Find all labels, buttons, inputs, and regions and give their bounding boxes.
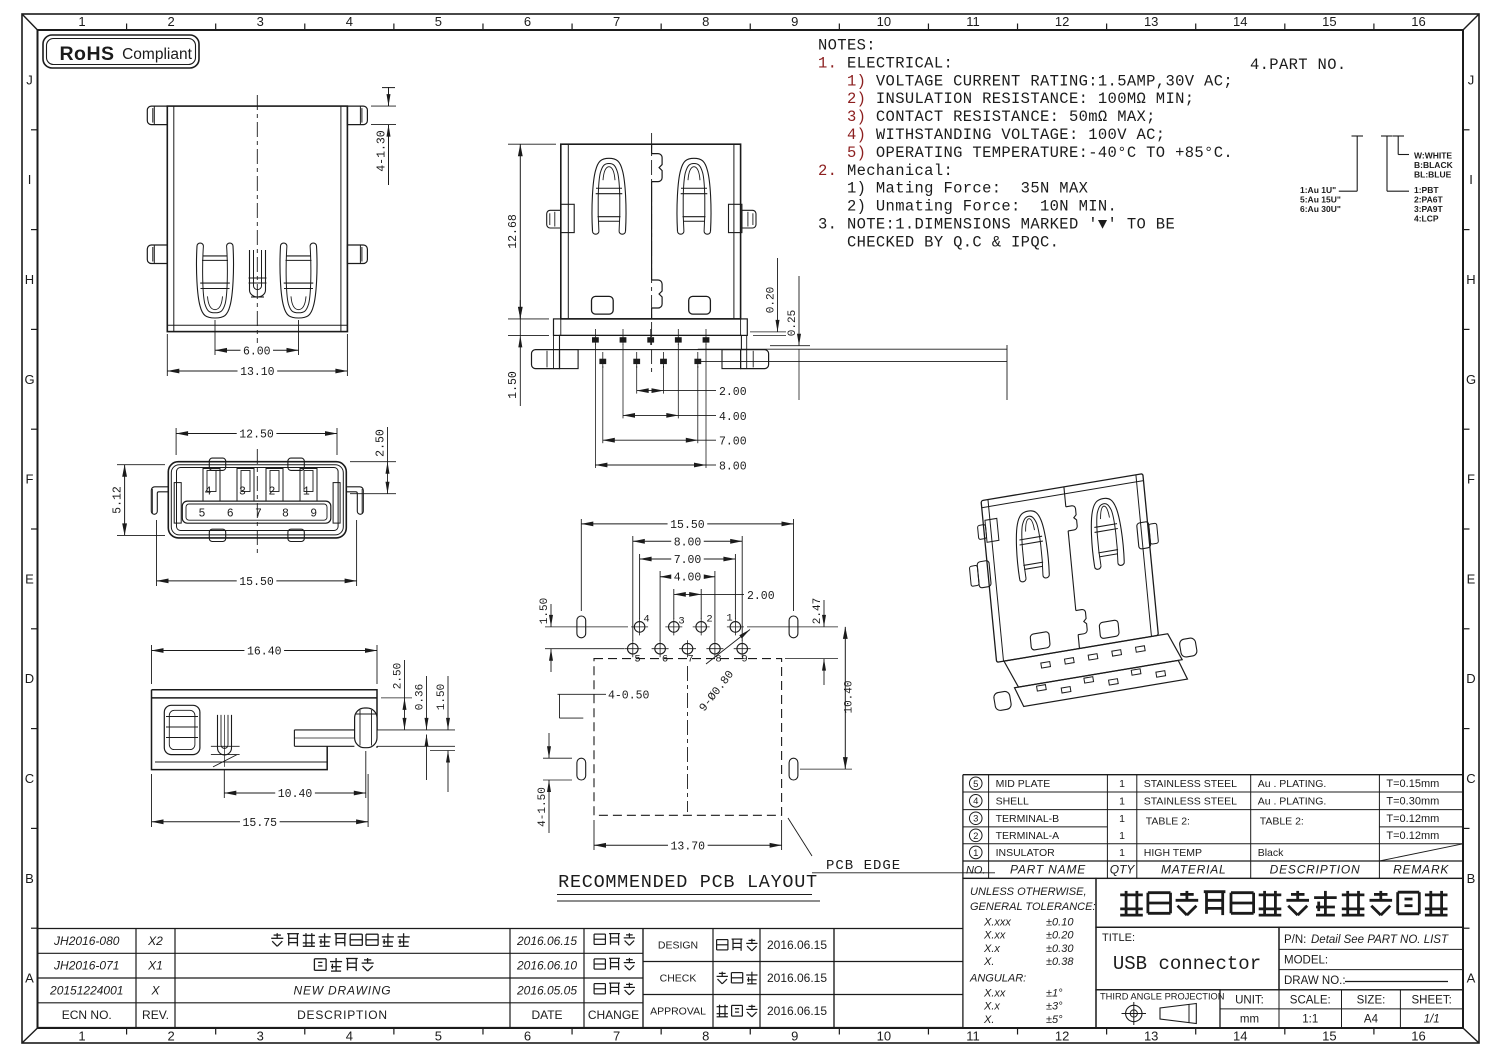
svg-text:STAINLESS STEEL: STAINLESS STEEL bbox=[1144, 796, 1237, 808]
svg-text:11: 11 bbox=[966, 14, 980, 29]
svg-text:3: 3 bbox=[973, 814, 978, 825]
svg-text:6:Au 30U": 6:Au 30U" bbox=[1300, 204, 1341, 214]
svg-text:F: F bbox=[26, 472, 34, 487]
svg-text:X.xx: X.xx bbox=[983, 930, 1006, 942]
svg-text:16.40: 16.40 bbox=[247, 646, 282, 659]
svg-text:13: 13 bbox=[1144, 14, 1158, 29]
svg-text:2.00: 2.00 bbox=[747, 590, 775, 603]
svg-text:4-1.30: 4-1.30 bbox=[376, 130, 389, 172]
svg-text:2:PA6T: 2:PA6T bbox=[1414, 195, 1443, 205]
svg-text:THIRD ANGLE PROJECTION: THIRD ANGLE PROJECTION bbox=[1100, 992, 1225, 1002]
svg-text:HIGH TEMP: HIGH TEMP bbox=[1144, 847, 1202, 859]
svg-text:VOLTAGE CURRENT RATING:1.5AMP,: VOLTAGE CURRENT RATING:1.5AMP,30V AC; bbox=[818, 72, 1233, 90]
svg-text:2016.06.10: 2016.06.10 bbox=[516, 959, 577, 973]
svg-text:1: 1 bbox=[973, 848, 978, 859]
svg-text:T=0.12mm: T=0.12mm bbox=[1386, 830, 1439, 842]
svg-text:1: 1 bbox=[1119, 813, 1125, 825]
svg-text:USB connector: USB connector bbox=[1113, 953, 1261, 975]
svg-text:PCB EDGE: PCB EDGE bbox=[826, 858, 901, 874]
svg-text:JH2016-080: JH2016-080 bbox=[53, 934, 120, 948]
svg-text:H: H bbox=[1466, 272, 1475, 287]
svg-text:2.47: 2.47 bbox=[812, 598, 824, 624]
svg-text:1:1: 1:1 bbox=[1302, 1013, 1318, 1025]
svg-text:15.50: 15.50 bbox=[670, 519, 705, 532]
svg-text:2.50: 2.50 bbox=[393, 663, 405, 689]
svg-text:DRAW NO.:: DRAW NO.: bbox=[1284, 975, 1346, 987]
svg-text:15.50: 15.50 bbox=[239, 576, 274, 589]
svg-text:2) Unmating Force: 10N MIN.: 2) Unmating Force: 10N MIN. bbox=[818, 198, 1117, 216]
svg-text:12: 12 bbox=[1055, 1029, 1069, 1044]
svg-text:7.00: 7.00 bbox=[719, 436, 747, 449]
svg-text:1: 1 bbox=[726, 613, 732, 625]
svg-text:9: 9 bbox=[791, 14, 798, 29]
svg-text:I: I bbox=[28, 172, 32, 187]
svg-text:1: 1 bbox=[1119, 778, 1125, 790]
svg-text:TABLE 2:: TABLE 2: bbox=[1260, 815, 1304, 827]
svg-text:B: B bbox=[1467, 871, 1476, 886]
svg-text:SHELL: SHELL bbox=[996, 796, 1029, 808]
svg-text:5: 5 bbox=[435, 14, 442, 29]
svg-text:2016.06.15: 2016.06.15 bbox=[516, 934, 577, 948]
svg-text:4: 4 bbox=[973, 796, 978, 807]
svg-text:Black: Black bbox=[1258, 847, 1284, 859]
svg-text:RoHS: RoHS bbox=[59, 43, 114, 65]
svg-text:TERMINAL-B: TERMINAL-B bbox=[996, 813, 1060, 825]
svg-text:CHECK: CHECK bbox=[660, 973, 697, 985]
svg-text:X.xx: X.xx bbox=[983, 988, 1006, 1000]
svg-text:8: 8 bbox=[702, 14, 709, 29]
svg-text:14: 14 bbox=[1233, 14, 1247, 29]
svg-text:5: 5 bbox=[198, 508, 205, 521]
svg-text:1) Mating Force: 35N MAX: 1) Mating Force: 35N MAX bbox=[818, 180, 1089, 198]
svg-text:TITLE:: TITLE: bbox=[1102, 932, 1135, 944]
svg-text:T=0.12mm: T=0.12mm bbox=[1386, 813, 1439, 825]
svg-text:9: 9 bbox=[310, 508, 317, 521]
svg-text:X: X bbox=[150, 983, 160, 997]
svg-text:B:BLACK: B:BLACK bbox=[1414, 160, 1454, 170]
svg-text:5: 5 bbox=[973, 779, 978, 790]
svg-text:5.12: 5.12 bbox=[112, 486, 125, 514]
svg-text:WITHSTANDING VOLTAGE: 100V AC;: WITHSTANDING VOLTAGE: 100V AC; bbox=[818, 126, 1165, 144]
svg-text:I: I bbox=[1469, 172, 1473, 187]
svg-text:9: 9 bbox=[741, 654, 747, 666]
svg-text:6: 6 bbox=[524, 1029, 531, 1044]
svg-text:2016.06.15: 2016.06.15 bbox=[767, 971, 827, 985]
svg-text:DESCRIPTION: DESCRIPTION bbox=[1270, 863, 1361, 877]
svg-text:X.xxx: X.xxx bbox=[983, 917, 1011, 929]
svg-text:10: 10 bbox=[877, 14, 891, 29]
svg-text:CONTACT RESISTANCE: 50mΩ MAX;: CONTACT RESISTANCE: 50mΩ MAX; bbox=[818, 108, 1156, 126]
svg-text:6: 6 bbox=[662, 654, 668, 666]
svg-text:2: 2 bbox=[973, 831, 978, 842]
svg-text:NO.: NO. bbox=[966, 865, 986, 877]
svg-text:APPROVAL: APPROVAL bbox=[650, 1006, 706, 1018]
svg-text:±0.30: ±0.30 bbox=[1046, 943, 1074, 955]
svg-text:G: G bbox=[1466, 372, 1476, 387]
svg-text:7: 7 bbox=[613, 1029, 620, 1044]
svg-text:UNLESS OTHERWISE,: UNLESS OTHERWISE, bbox=[970, 886, 1087, 898]
svg-text:ANGULAR:: ANGULAR: bbox=[969, 973, 1026, 985]
svg-text:X.: X. bbox=[983, 956, 994, 968]
svg-text:4: 4 bbox=[346, 1029, 353, 1044]
svg-text:10.40: 10.40 bbox=[278, 788, 313, 801]
svg-text:6: 6 bbox=[524, 14, 531, 29]
svg-text:5: 5 bbox=[634, 654, 640, 666]
svg-text:7: 7 bbox=[255, 508, 262, 521]
svg-text:3: 3 bbox=[257, 14, 264, 29]
svg-text:12.50: 12.50 bbox=[239, 429, 274, 442]
svg-text:±1°: ±1° bbox=[1046, 988, 1063, 1000]
svg-text:2: 2 bbox=[168, 14, 175, 29]
svg-text:0.20: 0.20 bbox=[766, 287, 778, 313]
svg-text:DESCRIPTION: DESCRIPTION bbox=[297, 1008, 388, 1022]
svg-text:8: 8 bbox=[282, 508, 289, 521]
svg-text:4.PART NO.: 4.PART NO. bbox=[1250, 56, 1347, 74]
svg-text:UNIT:: UNIT: bbox=[1235, 994, 1264, 1006]
svg-text:G: G bbox=[24, 372, 34, 387]
svg-text:14: 14 bbox=[1233, 1029, 1247, 1044]
svg-text:MATERIAL: MATERIAL bbox=[1161, 863, 1227, 877]
svg-text:3. NOTE:1.DIMENSIONS MARKED '▼: 3. NOTE:1.DIMENSIONS MARKED '▼' TO BE bbox=[818, 216, 1175, 234]
svg-text:12.68: 12.68 bbox=[507, 214, 520, 249]
svg-text:X.x: X.x bbox=[983, 1001, 1000, 1013]
svg-text:15: 15 bbox=[1322, 1029, 1336, 1044]
svg-text:13.70: 13.70 bbox=[671, 840, 706, 853]
svg-text:A: A bbox=[25, 971, 34, 986]
svg-text:5: 5 bbox=[435, 1029, 442, 1044]
svg-text:3:PA9T: 3:PA9T bbox=[1414, 204, 1443, 214]
svg-text:E: E bbox=[1467, 571, 1476, 586]
svg-text:SCALE:: SCALE: bbox=[1290, 994, 1331, 1006]
svg-text:1:Au 1U": 1:Au 1U" bbox=[1300, 185, 1336, 195]
svg-text:4-1.50: 4-1.50 bbox=[537, 787, 549, 827]
svg-text:D: D bbox=[25, 671, 34, 686]
svg-text:5:Au 15U": 5:Au 15U" bbox=[1300, 195, 1341, 205]
svg-text:4:LCP: 4:LCP bbox=[1414, 214, 1439, 224]
svg-text:8: 8 bbox=[715, 654, 721, 666]
svg-text:J: J bbox=[26, 72, 33, 87]
svg-text:1: 1 bbox=[1119, 847, 1125, 859]
svg-text:TERMINAL-A: TERMINAL-A bbox=[996, 830, 1060, 842]
svg-text:1: 1 bbox=[1119, 830, 1125, 842]
svg-text:7: 7 bbox=[613, 14, 620, 29]
svg-text:8.00: 8.00 bbox=[674, 536, 702, 549]
svg-text:W:WHITE: W:WHITE bbox=[1414, 151, 1452, 161]
svg-text:X2: X2 bbox=[147, 934, 163, 948]
svg-text:±0.10: ±0.10 bbox=[1046, 917, 1074, 929]
svg-text:2: 2 bbox=[706, 614, 712, 626]
svg-text:DESIGN: DESIGN bbox=[658, 940, 698, 952]
svg-text:1.50: 1.50 bbox=[507, 371, 520, 399]
svg-text:CHECKED BY Q.C & IPQC.: CHECKED BY Q.C & IPQC. bbox=[818, 233, 1059, 251]
svg-text:10.40: 10.40 bbox=[844, 680, 856, 713]
svg-text:JH2016-071: JH2016-071 bbox=[53, 959, 119, 973]
svg-text:1.50: 1.50 bbox=[539, 598, 551, 624]
svg-text:4-0.50: 4-0.50 bbox=[608, 690, 650, 703]
svg-text:SHEET:: SHEET: bbox=[1412, 994, 1452, 1006]
svg-text:12: 12 bbox=[1055, 14, 1069, 29]
svg-text:2.00: 2.00 bbox=[719, 386, 747, 399]
svg-text:STAINLESS STEEL: STAINLESS STEEL bbox=[1144, 778, 1237, 790]
svg-text:H: H bbox=[25, 272, 34, 287]
svg-text:2016.06.15: 2016.06.15 bbox=[767, 1004, 827, 1018]
svg-text:2016.05.05: 2016.05.05 bbox=[516, 983, 577, 997]
svg-text:6.00: 6.00 bbox=[243, 345, 271, 358]
svg-text:3: 3 bbox=[678, 616, 684, 628]
svg-text:SIZE:: SIZE: bbox=[1357, 994, 1386, 1006]
svg-text:9: 9 bbox=[791, 1029, 798, 1044]
svg-text:4: 4 bbox=[205, 486, 212, 499]
svg-text:NEW DRAWING: NEW DRAWING bbox=[294, 983, 392, 997]
svg-text:13: 13 bbox=[1144, 1029, 1158, 1044]
svg-text:15: 15 bbox=[1322, 14, 1336, 29]
svg-text:B: B bbox=[25, 871, 34, 886]
svg-text:±0.38: ±0.38 bbox=[1046, 956, 1074, 968]
svg-text:RECOMMENDED PCB LAYOUT: RECOMMENDED PCB LAYOUT bbox=[558, 872, 818, 893]
svg-text:DATE: DATE bbox=[531, 1008, 562, 1022]
svg-text:±3°: ±3° bbox=[1046, 1001, 1063, 1013]
svg-text:X1: X1 bbox=[147, 959, 163, 973]
svg-text:4.00: 4.00 bbox=[719, 411, 747, 424]
svg-text:Mechanical:: Mechanical: bbox=[818, 162, 953, 180]
svg-text:PART NAME: PART NAME bbox=[1010, 863, 1086, 877]
svg-text:mm: mm bbox=[1240, 1013, 1259, 1025]
svg-text:QTY: QTY bbox=[1110, 863, 1136, 877]
svg-text:0.36: 0.36 bbox=[415, 684, 427, 710]
svg-text:6: 6 bbox=[227, 508, 234, 521]
svg-text:D: D bbox=[1466, 671, 1475, 686]
svg-text:J: J bbox=[1468, 72, 1475, 87]
svg-text:T=0.30mm: T=0.30mm bbox=[1386, 796, 1439, 808]
svg-text:7: 7 bbox=[687, 654, 693, 666]
svg-text:REMARK: REMARK bbox=[1393, 863, 1449, 877]
svg-text:1: 1 bbox=[1119, 796, 1125, 808]
svg-text:X.: X. bbox=[983, 1014, 994, 1026]
svg-text:A: A bbox=[1467, 971, 1476, 986]
svg-text:Detail See PART NO. LIST: Detail See PART NO. LIST bbox=[1311, 934, 1449, 946]
svg-text:9-Ø0.80: 9-Ø0.80 bbox=[697, 668, 737, 714]
svg-text:20151224001: 20151224001 bbox=[49, 983, 123, 997]
svg-text:10: 10 bbox=[877, 1029, 891, 1044]
svg-text:Au . PLATING.: Au . PLATING. bbox=[1258, 778, 1327, 790]
svg-text:REV.: REV. bbox=[142, 1008, 169, 1022]
svg-text:4: 4 bbox=[346, 14, 353, 29]
svg-text:0.25: 0.25 bbox=[787, 310, 799, 336]
svg-text:T=0.15mm: T=0.15mm bbox=[1386, 778, 1439, 790]
svg-text:C: C bbox=[1466, 771, 1475, 786]
svg-text:8: 8 bbox=[702, 1029, 709, 1044]
svg-text:3: 3 bbox=[239, 486, 246, 499]
svg-text:4: 4 bbox=[643, 614, 649, 626]
svg-text:ELECTRICAL:: ELECTRICAL: bbox=[818, 54, 953, 72]
svg-text:A4: A4 bbox=[1364, 1013, 1379, 1025]
svg-text:3: 3 bbox=[257, 1029, 264, 1044]
svg-text:1:PBT: 1:PBT bbox=[1414, 185, 1439, 195]
svg-text:8.00: 8.00 bbox=[719, 461, 747, 474]
svg-text:2: 2 bbox=[168, 1029, 175, 1044]
svg-text:Compliant: Compliant bbox=[122, 46, 192, 63]
svg-text:ECN NO.: ECN NO. bbox=[62, 1008, 112, 1022]
svg-text:4.00: 4.00 bbox=[674, 572, 702, 585]
svg-text:2016.06.15: 2016.06.15 bbox=[767, 938, 827, 952]
svg-text:13.10: 13.10 bbox=[240, 366, 275, 379]
svg-text:15.75: 15.75 bbox=[243, 817, 278, 830]
svg-text:1: 1 bbox=[78, 14, 85, 29]
svg-text:±0.20: ±0.20 bbox=[1046, 930, 1074, 942]
svg-text:1: 1 bbox=[78, 1029, 85, 1044]
svg-text:BL:BLUE: BL:BLUE bbox=[1414, 170, 1452, 180]
svg-text:1/1: 1/1 bbox=[1424, 1013, 1440, 1025]
svg-text:1: 1 bbox=[303, 486, 310, 499]
svg-text:Au . PLATING.: Au . PLATING. bbox=[1258, 796, 1327, 808]
svg-text:MID PLATE: MID PLATE bbox=[996, 778, 1051, 790]
svg-text:NOTES:: NOTES: bbox=[818, 37, 876, 55]
svg-text:C: C bbox=[25, 771, 34, 786]
svg-text:2: 2 bbox=[268, 486, 275, 499]
svg-text:INSULATOR: INSULATOR bbox=[996, 847, 1056, 859]
svg-text:OPERATING TEMPERATURE:-40°C TO: OPERATING TEMPERATURE:-40°C TO +85°C. bbox=[818, 144, 1233, 162]
svg-text:TABLE 2:: TABLE 2: bbox=[1146, 815, 1190, 827]
svg-text:X.x: X.x bbox=[983, 943, 1000, 955]
svg-text:11: 11 bbox=[966, 1029, 980, 1044]
svg-text:E: E bbox=[25, 571, 34, 586]
svg-text:2.50: 2.50 bbox=[375, 429, 388, 457]
svg-text:MODEL:: MODEL: bbox=[1284, 955, 1328, 967]
svg-text:INSULATION RESISTANCE: 100MΩ M: INSULATION RESISTANCE: 100MΩ MIN; bbox=[818, 90, 1194, 108]
svg-text:P/N:: P/N: bbox=[1284, 934, 1310, 946]
svg-text:16: 16 bbox=[1411, 14, 1425, 29]
svg-text:7.00: 7.00 bbox=[674, 554, 702, 567]
svg-text:16: 16 bbox=[1411, 1029, 1425, 1044]
svg-text:GENERAL TOLERANCE:: GENERAL TOLERANCE: bbox=[970, 901, 1096, 913]
svg-text:F: F bbox=[1467, 472, 1475, 487]
svg-text:CHANGE: CHANGE bbox=[588, 1008, 639, 1022]
svg-text:1.50: 1.50 bbox=[436, 684, 448, 710]
svg-text:±5°: ±5° bbox=[1046, 1014, 1063, 1026]
